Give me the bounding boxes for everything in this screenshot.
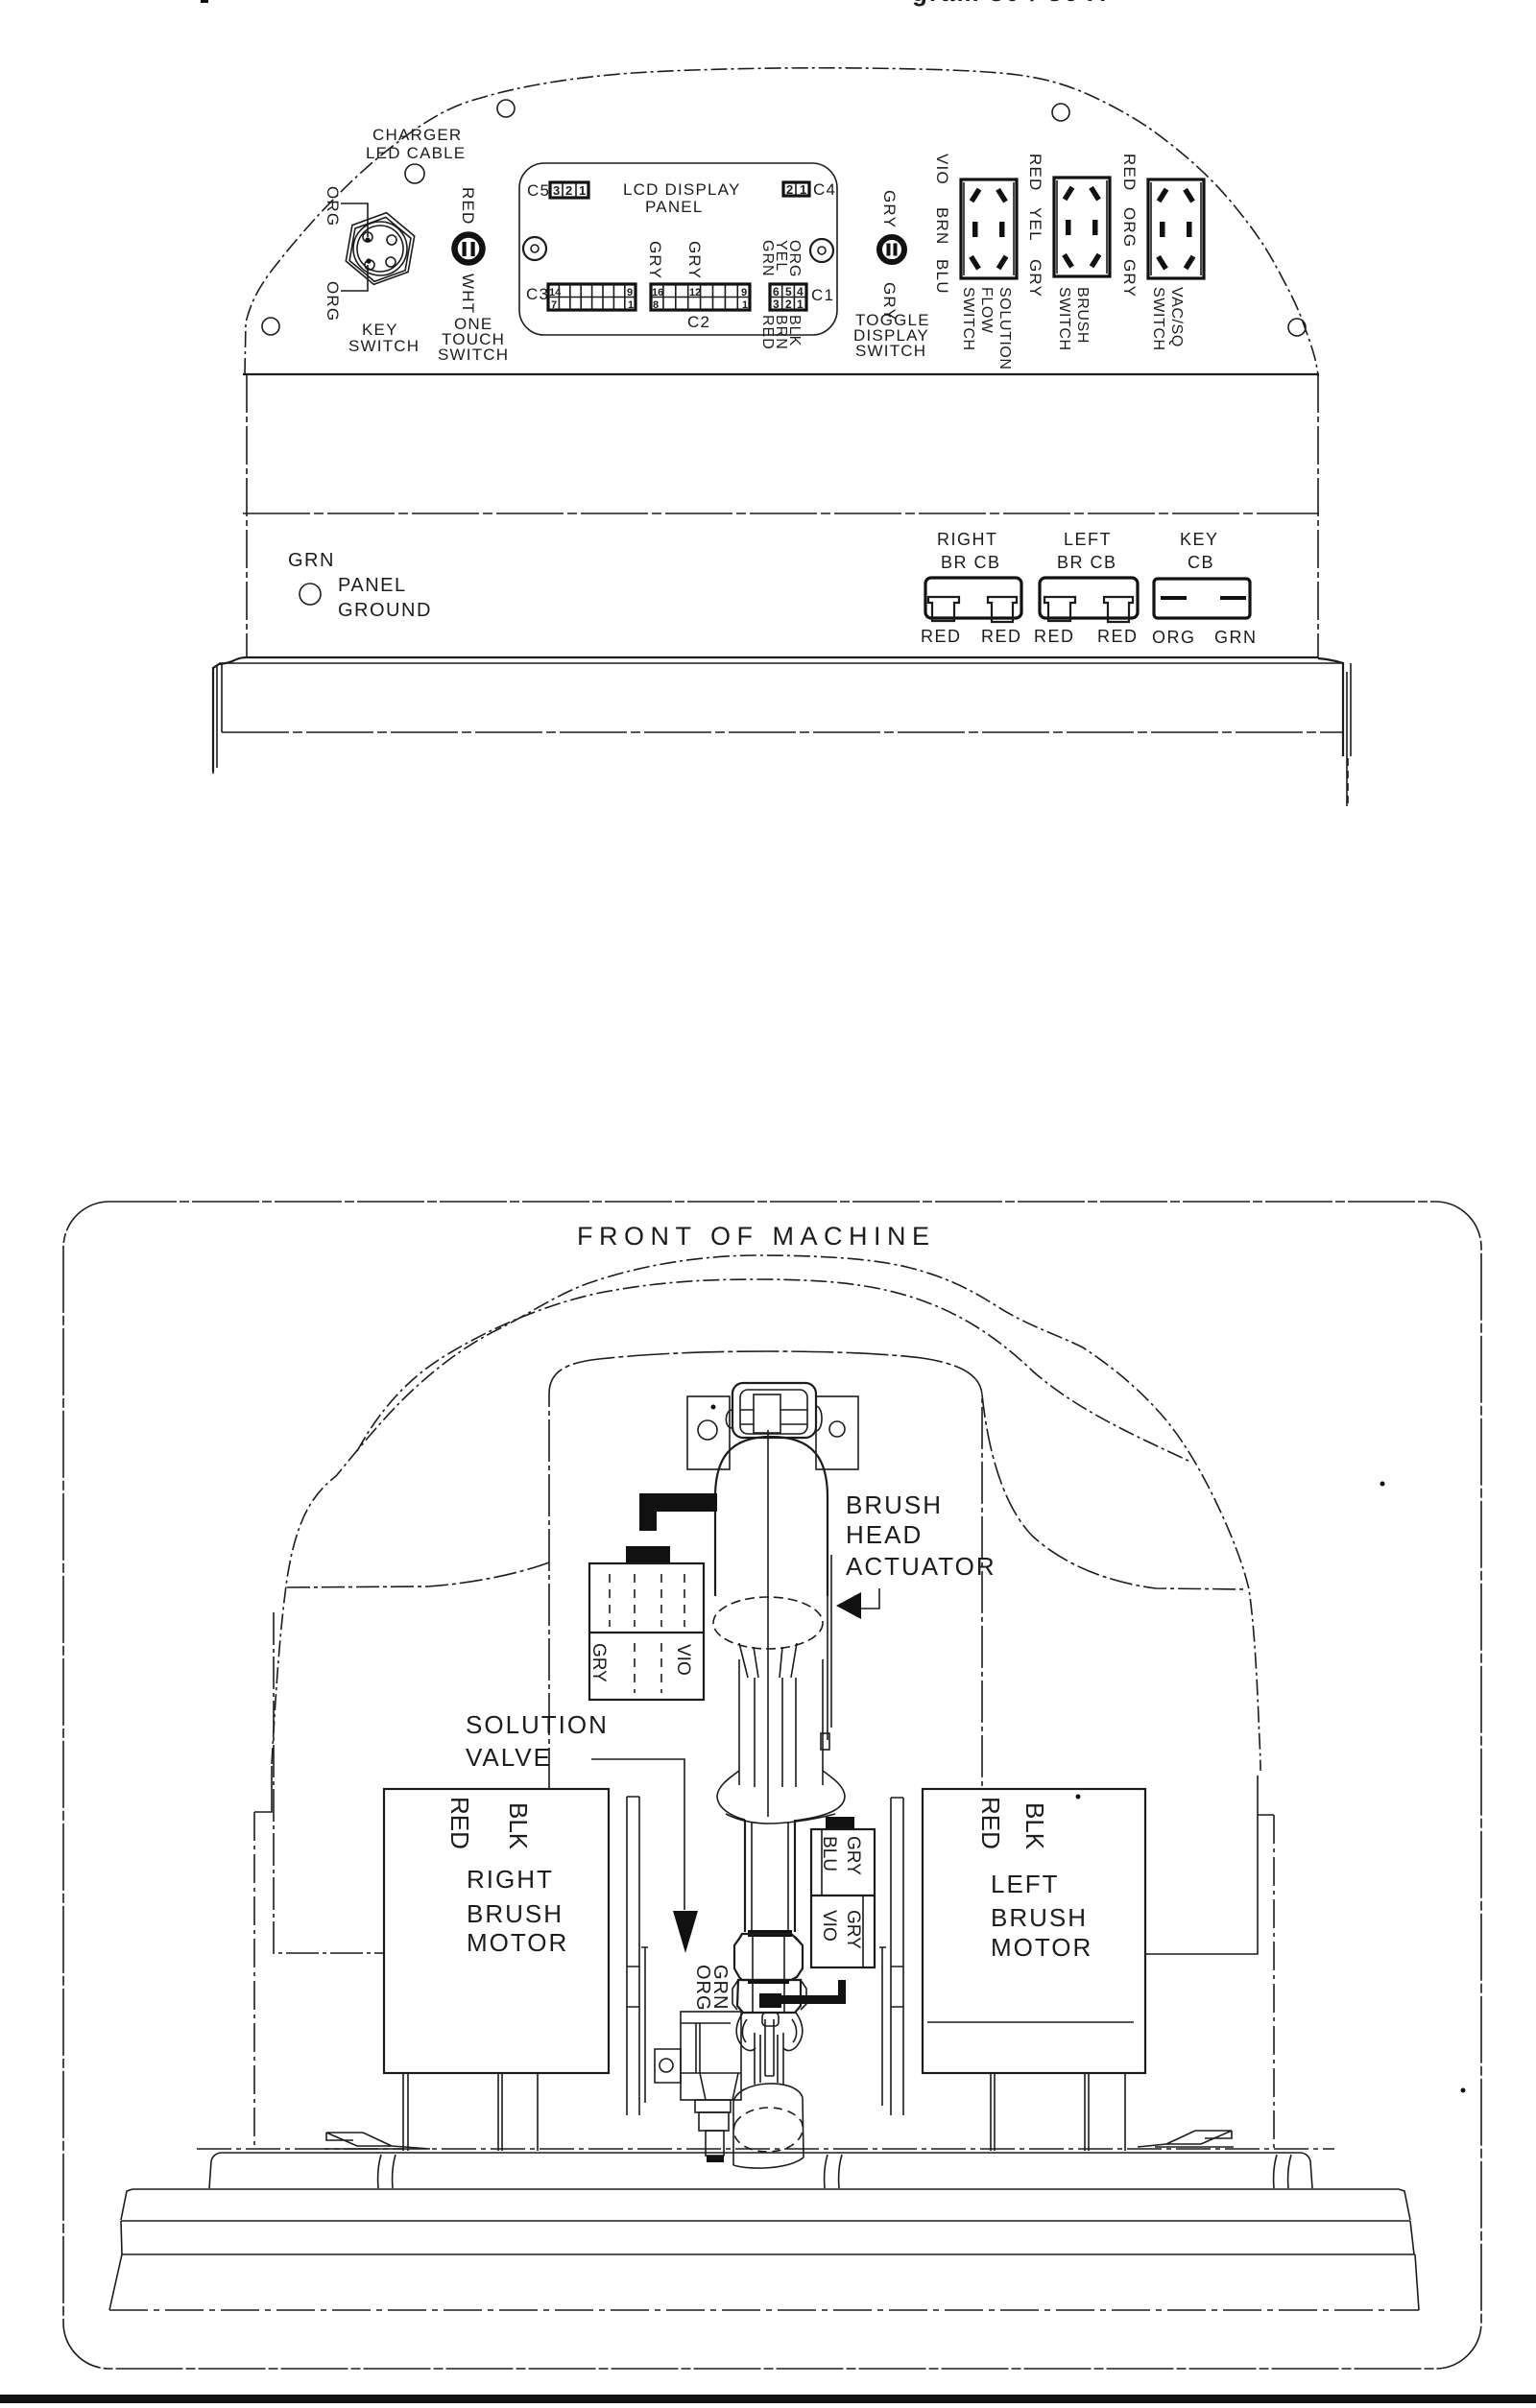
svg-text:BLK: BLK xyxy=(1020,1802,1049,1850)
svg-text:GRN: GRN xyxy=(288,550,335,571)
svg-text:SOLUTIONFLOWSWITCH: SOLUTIONFLOWSWITCH xyxy=(960,287,1013,370)
svg-text:VAC/SQSWITCH: VAC/SQSWITCH xyxy=(1150,287,1185,351)
svg-text:BRUSH: BRUSH xyxy=(991,1903,1088,1932)
svg-text:GRN: GRN xyxy=(709,1965,731,2010)
svg-text:CB: CB xyxy=(1188,553,1214,572)
svg-text:1: 1 xyxy=(797,298,804,311)
svg-text:LCD DISPLAY: LCD DISPLAY xyxy=(623,180,740,199)
svg-text:GROUND: GROUND xyxy=(338,600,432,621)
svg-text:3: 3 xyxy=(773,298,780,311)
svg-text:YEL: YEL xyxy=(1026,207,1044,242)
svg-text:RED: RED xyxy=(1097,627,1139,646)
svg-text:C4: C4 xyxy=(813,180,836,199)
svg-text:9: 9 xyxy=(741,287,747,298)
svg-text:1: 1 xyxy=(800,182,806,197)
svg-text:ORG: ORG xyxy=(1120,207,1139,248)
svg-text:gram 30 / 36 A: gram 30 / 36 A xyxy=(912,0,1107,7)
svg-text:BLK: BLK xyxy=(504,1802,533,1850)
svg-text:VIO: VIO xyxy=(819,1910,839,1942)
svg-text:SOLUTION: SOLUTION xyxy=(466,1710,609,1739)
svg-text:LEFT: LEFT xyxy=(991,1870,1060,1898)
svg-text:KEY: KEY xyxy=(1180,530,1219,549)
svg-text:GRY: GRY xyxy=(843,1910,863,1949)
svg-text:GRY: GRY xyxy=(843,1836,863,1875)
svg-text:RED: RED xyxy=(445,1797,474,1849)
svg-text:GRY: GRY xyxy=(880,190,899,228)
svg-text:ACTUATOR: ACTUATOR xyxy=(846,1552,996,1581)
svg-text:VIO: VIO xyxy=(673,1644,693,1676)
svg-text:GRY: GRY xyxy=(646,241,664,279)
svg-text:GRY: GRY xyxy=(685,241,704,279)
svg-text:RED: RED xyxy=(921,627,962,646)
svg-text:4: 4 xyxy=(797,285,804,298)
svg-text:C3: C3 xyxy=(526,285,549,303)
svg-text:ORG: ORG xyxy=(786,240,803,277)
svg-text:ORG: ORG xyxy=(324,186,342,226)
svg-text:1: 1 xyxy=(628,299,634,311)
svg-text:SWITCH: SWITCH xyxy=(438,346,509,364)
svg-text:WHT: WHT xyxy=(459,274,477,314)
svg-text:3: 3 xyxy=(553,183,560,198)
svg-text:SWITCH: SWITCH xyxy=(348,337,420,355)
svg-text:C2: C2 xyxy=(687,313,710,331)
svg-text:CHARGER: CHARGER xyxy=(372,126,462,144)
svg-text:5: 5 xyxy=(785,285,792,298)
svg-text:GRY: GRY xyxy=(1026,259,1044,298)
svg-text:RED: RED xyxy=(459,187,477,226)
svg-text:BR CB: BR CB xyxy=(941,553,1001,572)
svg-text:RED: RED xyxy=(976,1797,1005,1849)
svg-text:6: 6 xyxy=(773,285,780,298)
svg-text:RED: RED xyxy=(981,627,1022,646)
svg-text:16: 16 xyxy=(652,287,663,298)
svg-text:ORG: ORG xyxy=(324,281,342,322)
svg-text:RED: RED xyxy=(1120,154,1139,192)
svg-text:BRUSH: BRUSH xyxy=(846,1490,943,1519)
svg-text:BLU: BLU xyxy=(819,1836,839,1872)
svg-text:PANEL: PANEL xyxy=(338,575,407,596)
svg-text:RIGHT: RIGHT xyxy=(937,530,998,549)
svg-text:BLU: BLU xyxy=(933,259,951,295)
svg-text:C5: C5 xyxy=(527,181,550,200)
svg-text:RED: RED xyxy=(1034,627,1075,646)
svg-text:PANEL: PANEL xyxy=(645,198,704,216)
svg-text:BRUSH: BRUSH xyxy=(467,1899,564,1928)
svg-text:MOTOR: MOTOR xyxy=(991,1933,1092,1962)
svg-text:BRUSHSWITCH: BRUSHSWITCH xyxy=(1056,287,1091,351)
svg-text:12: 12 xyxy=(689,287,701,298)
svg-text:GRN: GRN xyxy=(1214,628,1258,647)
svg-text:MOTOR: MOTOR xyxy=(467,1928,568,1957)
svg-text:HEAD: HEAD xyxy=(846,1520,923,1549)
svg-text:BR CB: BR CB xyxy=(1057,553,1117,572)
svg-text:BRN: BRN xyxy=(933,207,951,246)
svg-text:VIO: VIO xyxy=(933,154,951,185)
svg-text:2: 2 xyxy=(785,298,792,311)
svg-text:RED: RED xyxy=(1026,154,1044,192)
svg-text:GRY: GRY xyxy=(588,1643,609,1682)
svg-text:ORG: ORG xyxy=(1152,628,1196,647)
svg-text:1: 1 xyxy=(742,299,748,311)
svg-text:BLK: BLK xyxy=(786,315,803,346)
svg-text:VALVE: VALVE xyxy=(466,1743,552,1772)
svg-text:SWITCH: SWITCH xyxy=(855,342,926,360)
svg-text:8: 8 xyxy=(653,299,659,311)
svg-text:14: 14 xyxy=(549,287,562,298)
svg-text:2: 2 xyxy=(565,183,572,198)
svg-text:RIGHT: RIGHT xyxy=(467,1865,554,1894)
svg-text:LED CABLE: LED CABLE xyxy=(366,144,466,162)
svg-text:7: 7 xyxy=(551,299,557,311)
svg-text:GRY: GRY xyxy=(1120,259,1139,298)
svg-text:9: 9 xyxy=(627,287,633,298)
svg-text:1: 1 xyxy=(579,183,586,198)
svg-text:C1: C1 xyxy=(811,286,834,304)
svg-text:2: 2 xyxy=(786,182,793,197)
svg-text:LEFT: LEFT xyxy=(1064,530,1112,549)
svg-text:FRONT OF MACHINE: FRONT OF MACHINE xyxy=(577,1222,936,1251)
